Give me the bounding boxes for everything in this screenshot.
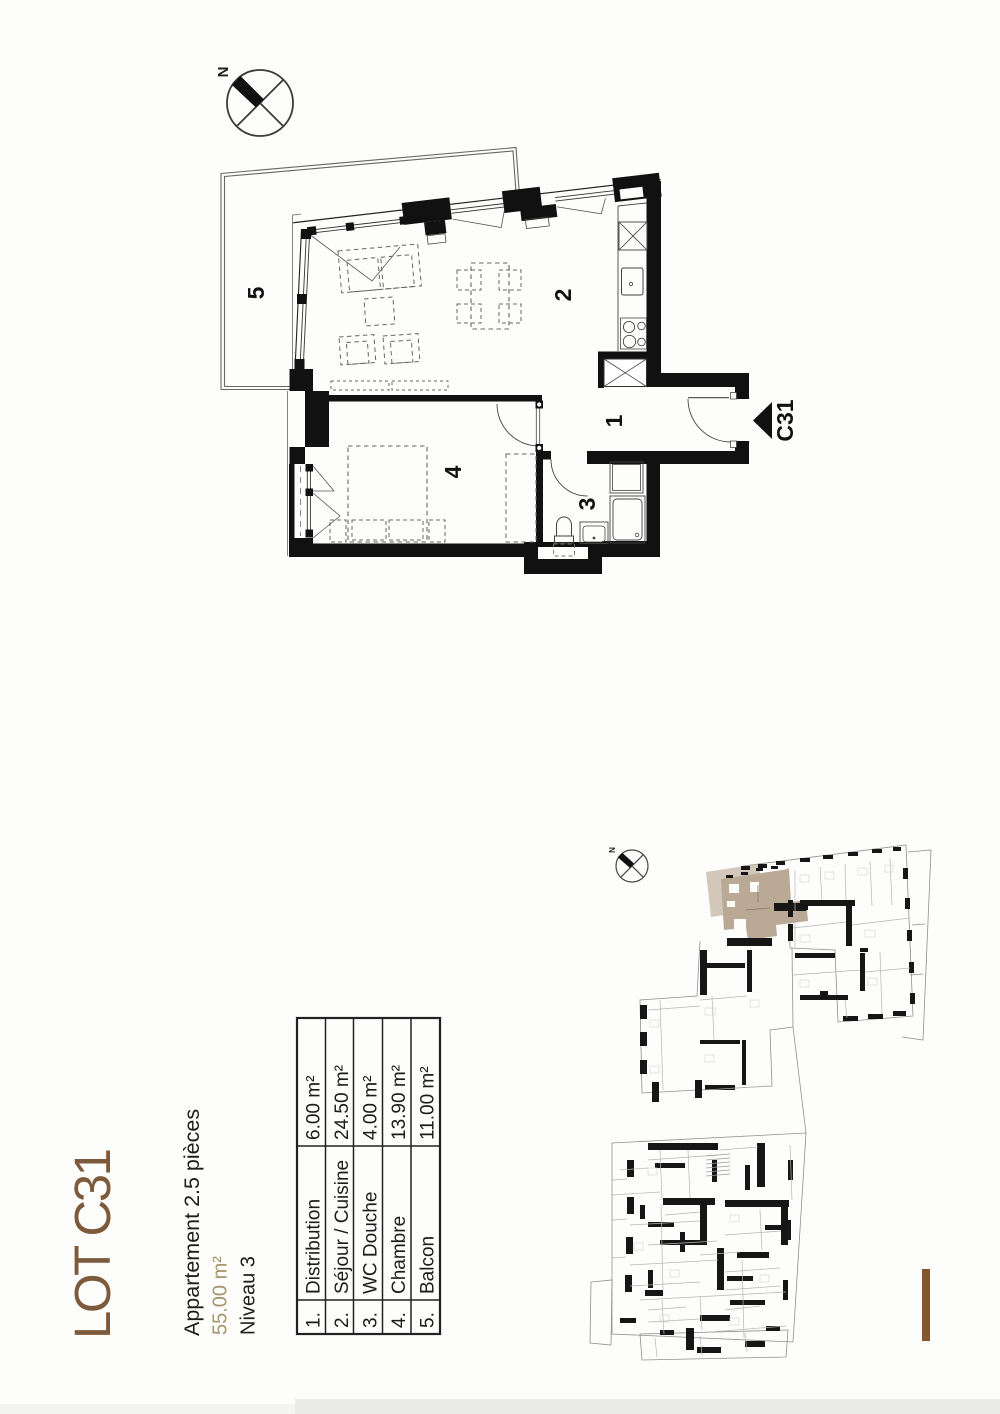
svg-text:C31: C31 — [772, 399, 798, 441]
svg-text:6.00 m²: 6.00 m² — [304, 1076, 325, 1140]
svg-text:Niveau 3: Niveau 3 — [238, 1256, 260, 1335]
svg-text:1: 1 — [601, 414, 627, 427]
svg-text:Appartement 2.5 pièces: Appartement 2.5 pièces — [180, 1109, 204, 1336]
svg-text:3.: 3. — [361, 1312, 382, 1328]
svg-text:1.: 1. — [304, 1312, 325, 1328]
svg-text:WC Douche: WC Douche — [361, 1192, 382, 1294]
svg-text:4.00 m²: 4.00 m² — [361, 1076, 382, 1140]
svg-text:13.90 m²: 13.90 m² — [389, 1065, 410, 1140]
svg-text:Balcon: Balcon — [418, 1236, 439, 1294]
svg-text:LOT C31: LOT C31 — [64, 1150, 121, 1339]
svg-text:Distribution: Distribution — [304, 1199, 325, 1294]
svg-text:4.: 4. — [389, 1312, 410, 1328]
svg-text:N: N — [608, 847, 617, 853]
svg-text:2: 2 — [550, 289, 576, 302]
svg-text:11.00 m²: 11.00 m² — [418, 1066, 439, 1140]
svg-text:24.50 m²: 24.50 m² — [332, 1065, 353, 1140]
svg-text:5: 5 — [243, 286, 269, 299]
svg-text:Séjour / Cuisine: Séjour / Cuisine — [332, 1160, 353, 1294]
svg-text:5.: 5. — [418, 1312, 439, 1328]
svg-text:2.: 2. — [332, 1312, 353, 1328]
svg-text:55.00 m²: 55.00 m² — [210, 1256, 232, 1335]
svg-text:3: 3 — [574, 498, 600, 511]
svg-text:N: N — [215, 67, 232, 78]
svg-text:Chambre: Chambre — [389, 1216, 410, 1294]
svg-text:4: 4 — [440, 465, 466, 478]
